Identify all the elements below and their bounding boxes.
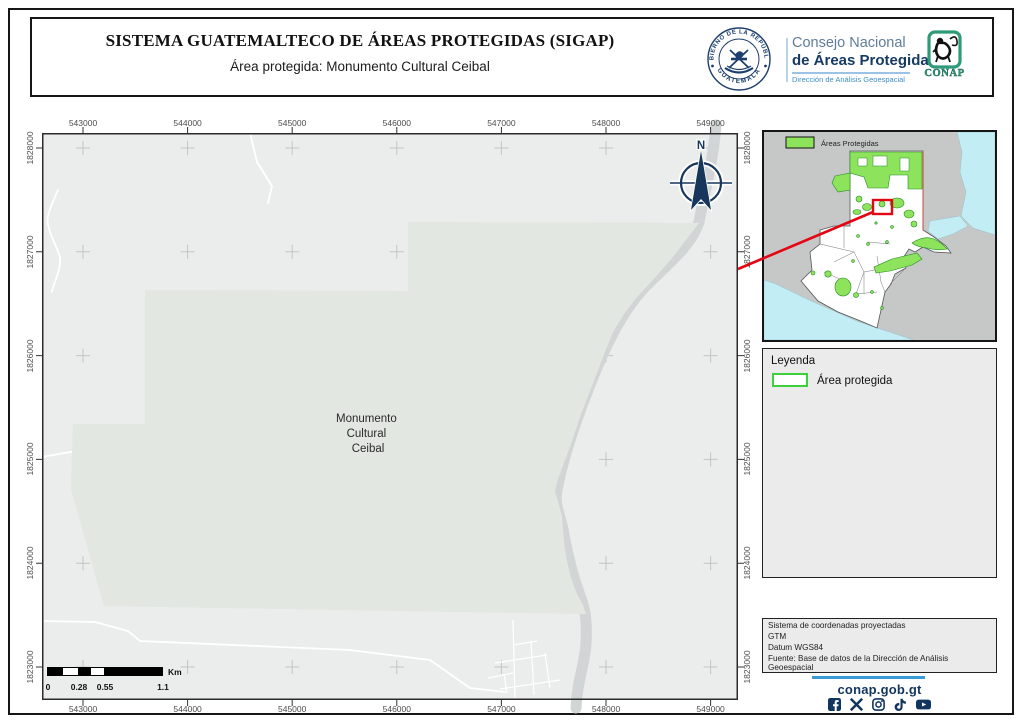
info-line: GTM xyxy=(768,632,996,641)
page-title: SISTEMA GUATEMALTECO DE ÁREAS PROTEGIDAS… xyxy=(30,31,690,51)
tiktok-icon[interactable] xyxy=(894,698,907,711)
consejo-line3: Dirección de Análisis Geoespacial xyxy=(792,76,942,84)
info-line: Sistema de coordenadas proyectadas xyxy=(768,621,996,630)
legend-title: Leyenda xyxy=(771,355,815,367)
social-icons xyxy=(762,698,997,711)
page-subtitle: Área protegida: Monumento Cultural Ceiba… xyxy=(30,59,690,74)
map-sheet: SISTEMA GUATEMALTECO DE ÁREAS PROTEGIDAS… xyxy=(0,0,1024,724)
info-line: Fuente: Base de datos de la Dirección de… xyxy=(768,654,996,673)
overview-legend-swatch xyxy=(786,137,814,148)
overview-map-box: Áreas Protegidas xyxy=(762,130,997,342)
youtube-icon[interactable] xyxy=(916,698,931,711)
info-box: Sistema de coordenadas proyectadas GTM D… xyxy=(762,618,997,673)
legend-item-label: Área protegida xyxy=(817,375,892,387)
legend-box: Leyenda Área protegida xyxy=(762,348,997,578)
facebook-icon[interactable] xyxy=(828,698,841,711)
consejo-underline xyxy=(792,72,910,74)
consejo-wordmark: Consejo Nacional de Áreas Protegidas Dir… xyxy=(792,36,942,84)
footer-domain-link[interactable]: conap.gob.gt xyxy=(762,682,997,697)
instagram-icon[interactable] xyxy=(872,698,885,711)
consejo-line2: de Áreas Protegidas xyxy=(792,53,942,69)
info-line: Datum WGS84 xyxy=(768,643,996,652)
overview-map: Áreas Protegidas xyxy=(764,132,995,340)
logo-divider xyxy=(786,38,788,82)
protected-area-swatch xyxy=(772,373,808,387)
consejo-line1: Consejo Nacional xyxy=(792,36,942,51)
x-icon[interactable] xyxy=(850,698,863,711)
overview-legend-label: Áreas Protegidas xyxy=(821,139,879,148)
footer-rule xyxy=(812,676,925,679)
